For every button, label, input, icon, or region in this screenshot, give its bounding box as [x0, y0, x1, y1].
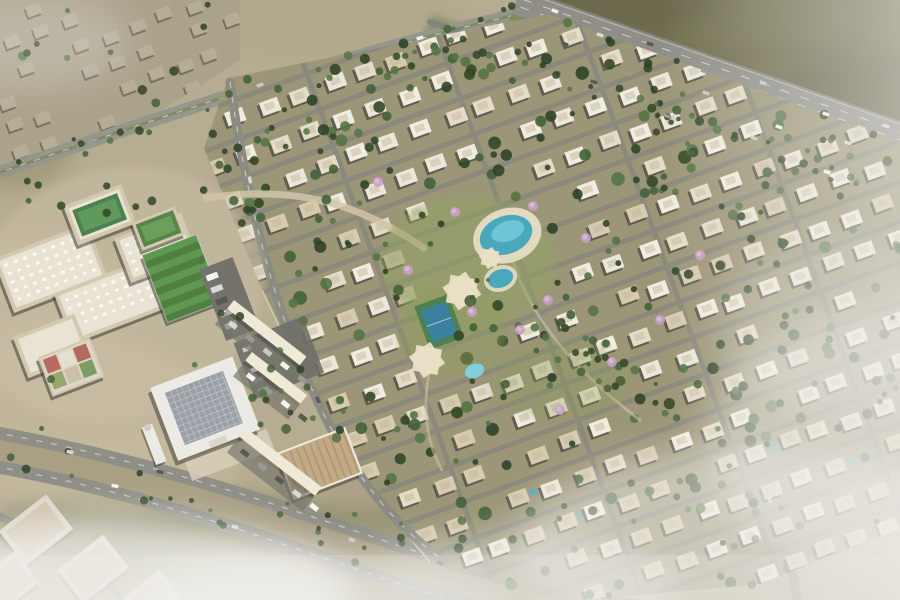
scene-canvas: [0, 0, 900, 600]
aerial-masterplan-render: [0, 0, 900, 600]
